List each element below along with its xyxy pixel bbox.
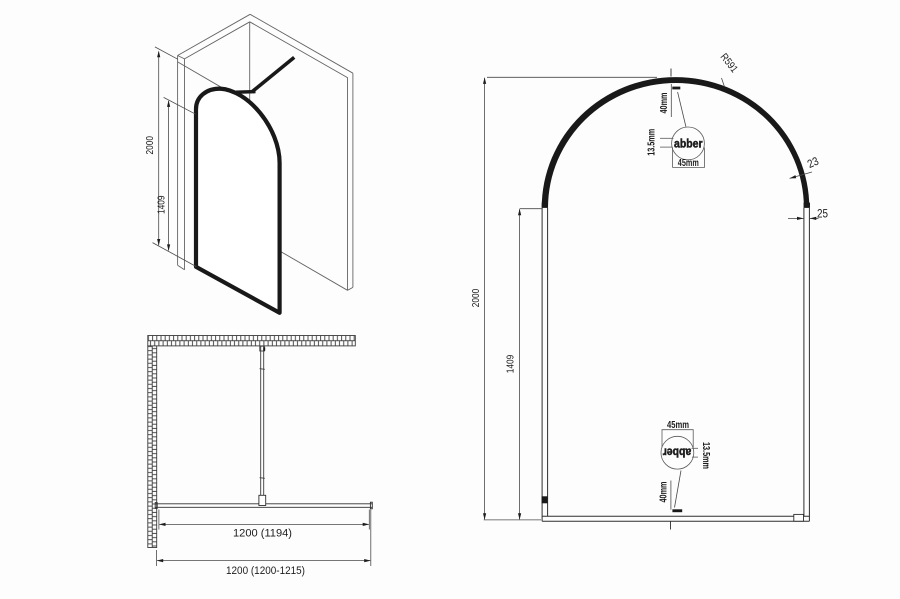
svg-text:45mm: 45mm bbox=[678, 158, 699, 169]
svg-text:1409: 1409 bbox=[506, 354, 517, 373]
svg-text:40mm: 40mm bbox=[658, 482, 669, 503]
svg-text:abber: abber bbox=[674, 137, 703, 151]
svg-text:2000: 2000 bbox=[145, 136, 156, 155]
svg-text:13.5mm: 13.5mm bbox=[647, 129, 658, 156]
svg-text:1409: 1409 bbox=[157, 195, 168, 214]
svg-text:2000: 2000 bbox=[471, 288, 482, 307]
svg-text:1200 (1200-1215): 1200 (1200-1215) bbox=[226, 565, 305, 577]
svg-text:13.5mm: 13.5mm bbox=[700, 442, 711, 469]
svg-text:25: 25 bbox=[817, 209, 828, 221]
svg-text:abber: abber bbox=[662, 446, 691, 460]
svg-text:1200 (1194): 1200 (1194) bbox=[233, 528, 292, 540]
svg-text:40mm: 40mm bbox=[659, 93, 670, 114]
